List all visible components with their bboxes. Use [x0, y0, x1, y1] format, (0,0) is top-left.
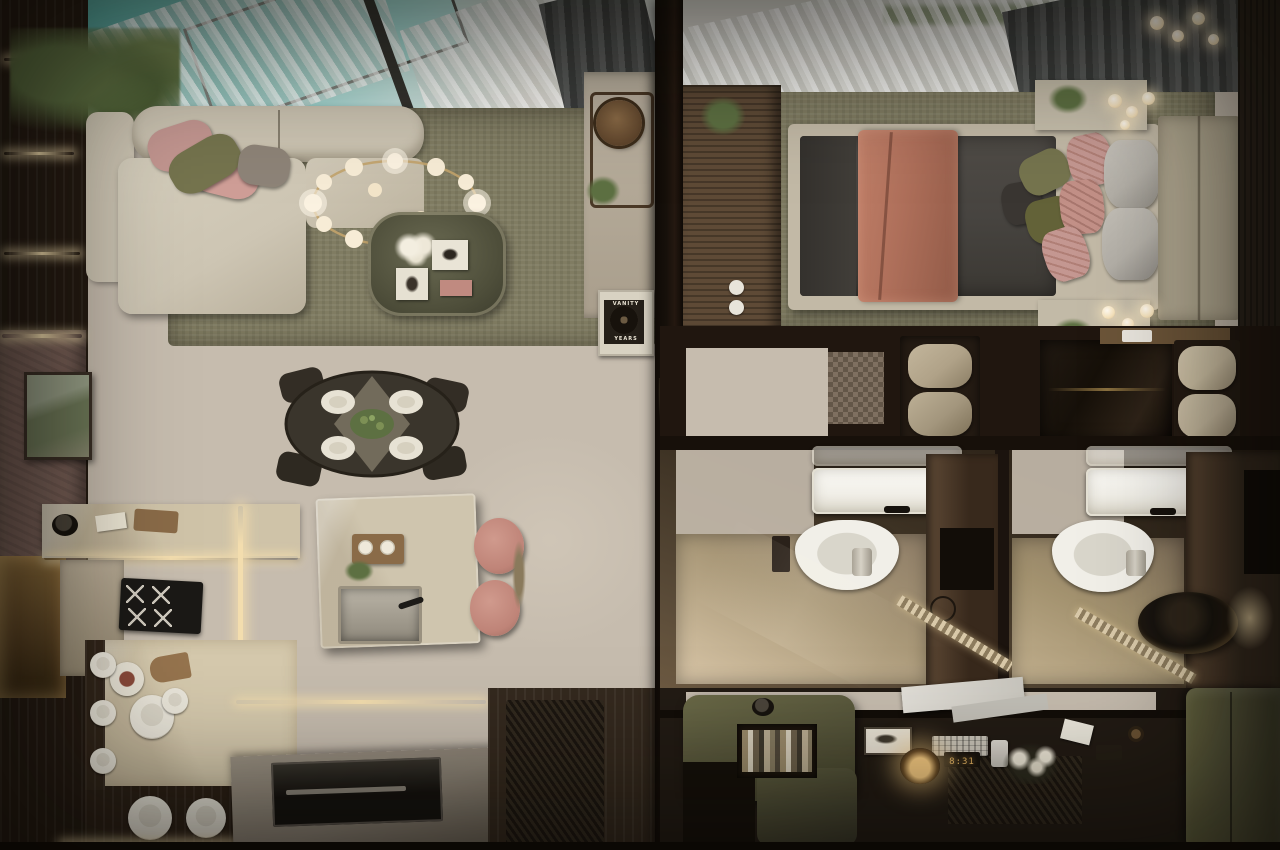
- terracotta-throw: [858, 130, 958, 302]
- wall-led-strip-3: [4, 252, 80, 255]
- bed-pillow-gray-2: [1102, 208, 1160, 280]
- hob-burner-4: [154, 609, 172, 627]
- entry-floor: [686, 348, 828, 438]
- hob-burner-2: [152, 586, 170, 604]
- window-globe-4: [1208, 34, 1219, 45]
- bathB-rain-shower-head: [1138, 592, 1238, 654]
- bench2-cushion-2: [1178, 394, 1236, 438]
- window-globe-3: [1192, 12, 1205, 25]
- pendant-globe-5: [1102, 306, 1115, 319]
- tray-glyph-2: [404, 274, 420, 294]
- wall-plate-3: [90, 748, 116, 774]
- bathB-warm-niche-glow: [1226, 586, 1274, 650]
- cutting-board: [133, 508, 178, 533]
- bathA-tiled-wall: [676, 450, 814, 534]
- console-plant: [586, 176, 620, 206]
- gold-lit-cabinet: [0, 556, 66, 698]
- hob-burner-1: [126, 585, 144, 603]
- black-bowl: [52, 514, 78, 536]
- desk-dark-tray: [1096, 745, 1122, 760]
- clock-display: 8:31: [949, 757, 975, 767]
- shelf-plate-stack-1: [128, 796, 172, 840]
- bathB-vanity-niche: [1244, 470, 1280, 574]
- apartment-render: VANITY YEARS: [0, 0, 1280, 850]
- desk-pen-cup: [1128, 726, 1144, 742]
- nightstand-top-plant: [1048, 84, 1088, 114]
- duvet-fold-dark: [800, 136, 856, 296]
- bathA-soap-cylinder: [852, 548, 872, 576]
- black-marble-console: [1040, 340, 1172, 442]
- bench-cushion-leather-1: [908, 344, 972, 388]
- pendant-globe-1: [1108, 94, 1122, 108]
- dining-set: [272, 362, 477, 492]
- photo-sketch: [872, 733, 900, 745]
- pendant-globe-3: [1142, 92, 1155, 105]
- window-globe-2: [1172, 30, 1184, 42]
- bathA-vanity-niche: [940, 528, 994, 590]
- green-bench-seam: [1230, 692, 1232, 846]
- entry-mosaic-wall: [828, 352, 884, 424]
- bedroom-window-band: [683, 0, 1238, 92]
- oven-led: [236, 700, 486, 704]
- panel-led-strip: [2, 334, 82, 338]
- pendant-globe-2: [1126, 106, 1138, 118]
- framed-artwork: [24, 372, 92, 460]
- bottom-wall-strip: [0, 842, 1280, 850]
- marble-console-sheen: [1048, 388, 1166, 391]
- console-dish-2: [729, 300, 744, 315]
- console-dish-1: [729, 280, 744, 295]
- office-olive-sofa-2: [757, 768, 857, 846]
- bathB-soap-cylinder: [1126, 550, 1146, 576]
- headboard: [1158, 116, 1240, 320]
- island-herb-plant: [344, 560, 374, 582]
- runner-mat: [506, 700, 604, 850]
- tray-cup-2: [380, 540, 395, 555]
- food-plate-3: [162, 688, 188, 714]
- desk-flowers: [1002, 742, 1060, 784]
- console-plant-bedroom: [700, 96, 746, 136]
- bed-pillow-gray-1: [1104, 140, 1160, 208]
- bathA-faucet: [884, 506, 910, 513]
- bench-cushion-leather-2: [908, 392, 972, 436]
- wall-led-strip-2: [4, 152, 74, 155]
- green-bench: [1186, 688, 1280, 850]
- vanity-years-poster: VANITY YEARS: [598, 290, 654, 356]
- bathB-faucet: [1150, 508, 1176, 515]
- desk-lamp-shade: [900, 748, 940, 784]
- window-globe-1: [1150, 16, 1164, 30]
- office-bowl: [752, 698, 774, 716]
- poster-vinyl: [610, 306, 638, 334]
- island-sink: [338, 586, 422, 644]
- stool-footrest: [512, 540, 526, 610]
- tray-cup-1: [358, 540, 373, 555]
- book-spines: [742, 730, 812, 772]
- wall-plate-1: [90, 652, 116, 678]
- shelf-plate-stack-2: [186, 798, 226, 838]
- pink-tray: [440, 280, 472, 296]
- pendant-globe-7: [1140, 304, 1154, 318]
- bench2-cushion-1: [1178, 346, 1236, 390]
- poster-title: VANITY: [600, 301, 652, 307]
- shelf-device: [1122, 330, 1152, 342]
- digital-clock: 8:31: [944, 752, 980, 767]
- wall-plate-2: [90, 700, 116, 726]
- poster-subtitle: YEARS: [600, 336, 652, 342]
- pendant-globe-4: [1120, 120, 1130, 130]
- hob-burner-3: [128, 608, 146, 626]
- tray-glyph-1: [440, 247, 460, 262]
